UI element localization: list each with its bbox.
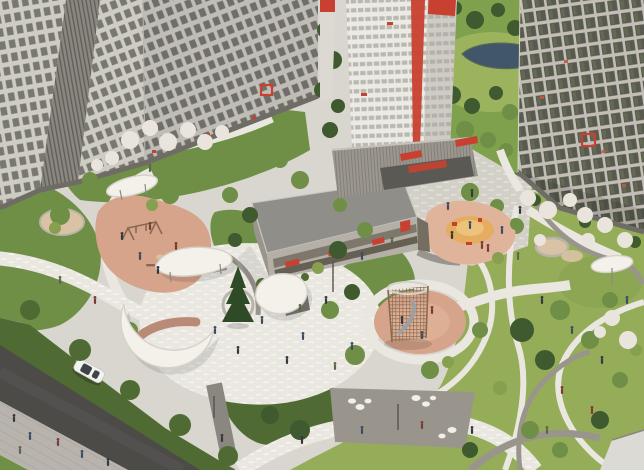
- tree: [69, 339, 91, 361]
- pedestrian: [391, 237, 394, 245]
- boulder: [422, 401, 430, 406]
- tree: [50, 205, 70, 225]
- tree: [463, 183, 477, 197]
- blossom-tree: [91, 159, 103, 171]
- blossom-tree: [619, 331, 637, 349]
- pedestrian: [121, 232, 124, 240]
- tree: [16, 226, 34, 244]
- blossom-tree: [597, 217, 613, 233]
- pedestrian: [139, 252, 142, 260]
- shrub: [591, 411, 609, 429]
- tree: [550, 300, 570, 320]
- blossom-tree: [159, 133, 177, 151]
- pedestrian: [501, 226, 504, 234]
- shrub: [535, 350, 555, 370]
- shrub: [462, 442, 478, 458]
- pedestrian: [334, 362, 337, 370]
- pedestrian: [351, 342, 354, 350]
- pedestrian: [221, 434, 224, 442]
- boulder: [348, 398, 356, 403]
- tree: [421, 361, 439, 379]
- shrub: [242, 207, 258, 223]
- tree: [480, 132, 496, 148]
- red-accent: [152, 150, 156, 153]
- render-viewport: [0, 0, 644, 470]
- boulder-terrace: [330, 388, 475, 448]
- pedestrian: [94, 296, 97, 304]
- tree: [489, 86, 503, 100]
- pedestrian: [481, 241, 484, 249]
- blossom-tree: [539, 201, 557, 219]
- pedestrian: [401, 316, 404, 324]
- tree: [333, 198, 347, 212]
- tree: [464, 98, 480, 114]
- pedestrian: [29, 432, 32, 440]
- tree: [197, 167, 213, 183]
- blossom-tree: [604, 310, 620, 326]
- tree: [161, 186, 179, 204]
- tree: [466, 11, 484, 29]
- shrub: [329, 241, 347, 259]
- tree: [322, 122, 338, 138]
- pedestrian: [517, 252, 520, 260]
- tree: [345, 345, 365, 365]
- pedestrian: [421, 331, 424, 339]
- pedestrian: [469, 221, 472, 229]
- pedestrian: [561, 386, 564, 394]
- pedestrian: [325, 296, 328, 304]
- tree: [521, 421, 539, 439]
- blossom-tree: [215, 125, 229, 139]
- tree: [612, 372, 628, 388]
- pedestrian: [157, 266, 160, 274]
- shrub: [510, 318, 534, 342]
- pedestrian: [571, 326, 574, 334]
- pedestrian: [601, 356, 604, 364]
- pedestrian: [57, 438, 60, 446]
- pedestrian: [591, 406, 594, 414]
- pedestrian: [471, 189, 474, 197]
- boulder: [365, 399, 372, 404]
- pedestrian: [81, 450, 84, 458]
- tree: [492, 252, 504, 264]
- balance-log: [146, 264, 155, 266]
- tree: [146, 199, 158, 211]
- tree: [491, 3, 505, 17]
- tree: [502, 104, 518, 120]
- pedestrian: [214, 326, 217, 334]
- play-equipment: [452, 222, 457, 226]
- pedestrian: [519, 206, 522, 214]
- blossom-tree: [105, 151, 119, 165]
- pedestrian: [487, 244, 490, 252]
- tree: [20, 300, 40, 320]
- tree: [331, 99, 345, 113]
- tree: [456, 121, 474, 139]
- pedestrian: [299, 304, 302, 312]
- pedestrian: [431, 306, 434, 314]
- boulder: [356, 404, 365, 410]
- tree: [218, 446, 238, 466]
- tree: [472, 322, 488, 338]
- pedestrian: [471, 426, 474, 434]
- climbing-tower: [384, 282, 432, 350]
- blossom-tree: [520, 190, 536, 206]
- rear-tower-red-crown: [320, 0, 335, 12]
- pedestrian: [59, 276, 62, 284]
- blossom-tree: [577, 207, 593, 223]
- play-equipment: [478, 218, 482, 222]
- red-accent: [361, 93, 367, 96]
- pedestrian: [286, 356, 289, 364]
- pedestrian: [19, 446, 22, 454]
- tree: [312, 262, 324, 274]
- tree: [66, 291, 84, 309]
- tree: [222, 187, 238, 203]
- red-accent: [387, 22, 393, 25]
- boulder: [438, 434, 445, 439]
- pedestrian: [546, 426, 549, 434]
- tower-red-crown: [428, 0, 456, 16]
- tree: [510, 218, 522, 230]
- red-panel: [622, 184, 626, 187]
- blossom-tree: [142, 120, 158, 136]
- pedestrian: [149, 222, 152, 230]
- pedestrian: [301, 436, 304, 444]
- shrub: [228, 233, 242, 247]
- pedestrian: [361, 426, 364, 434]
- shrub: [290, 420, 310, 440]
- pedestrian: [302, 332, 305, 340]
- tree: [272, 152, 288, 168]
- blossom-tree: [581, 233, 595, 247]
- blossom-tree: [121, 131, 139, 149]
- render-canvas: [0, 0, 644, 470]
- blossom-tree: [617, 232, 633, 248]
- pedestrian: [261, 316, 264, 324]
- tree: [82, 172, 98, 188]
- blossom-tree: [197, 134, 213, 150]
- red-panel: [540, 96, 544, 99]
- blossom-tree: [534, 234, 546, 246]
- boulder: [430, 396, 436, 400]
- blossom-tree: [563, 193, 577, 207]
- tree: [169, 414, 191, 436]
- tree: [602, 292, 618, 308]
- pedestrian: [175, 242, 178, 250]
- pedestrian: [447, 202, 450, 210]
- blossom-tree: [180, 122, 196, 138]
- blossom-tree: [594, 326, 606, 338]
- shrub: [344, 284, 360, 300]
- pedestrian: [451, 231, 454, 239]
- red-panel: [564, 60, 568, 63]
- red-accent: [252, 116, 256, 119]
- pedestrian: [107, 458, 110, 466]
- pedestrian: [626, 296, 629, 304]
- play-equipment: [466, 242, 472, 245]
- red-panel: [602, 150, 606, 153]
- pedestrian: [13, 414, 16, 422]
- pedestrian: [149, 164, 152, 172]
- pedestrian: [237, 346, 240, 354]
- pedestrian: [421, 421, 424, 429]
- pedestrian: [361, 252, 364, 260]
- boulder: [412, 395, 421, 401]
- spruce-shadow: [227, 323, 249, 329]
- tree: [120, 380, 140, 400]
- shrub: [261, 406, 279, 424]
- tree: [493, 381, 507, 395]
- tree: [442, 356, 454, 368]
- tree: [291, 171, 309, 189]
- tree: [552, 442, 568, 458]
- seating-mound: [561, 250, 583, 262]
- tree: [357, 222, 373, 238]
- tree: [321, 301, 339, 319]
- tree: [49, 222, 61, 234]
- boulder: [448, 427, 457, 433]
- pedestrian: [541, 296, 544, 304]
